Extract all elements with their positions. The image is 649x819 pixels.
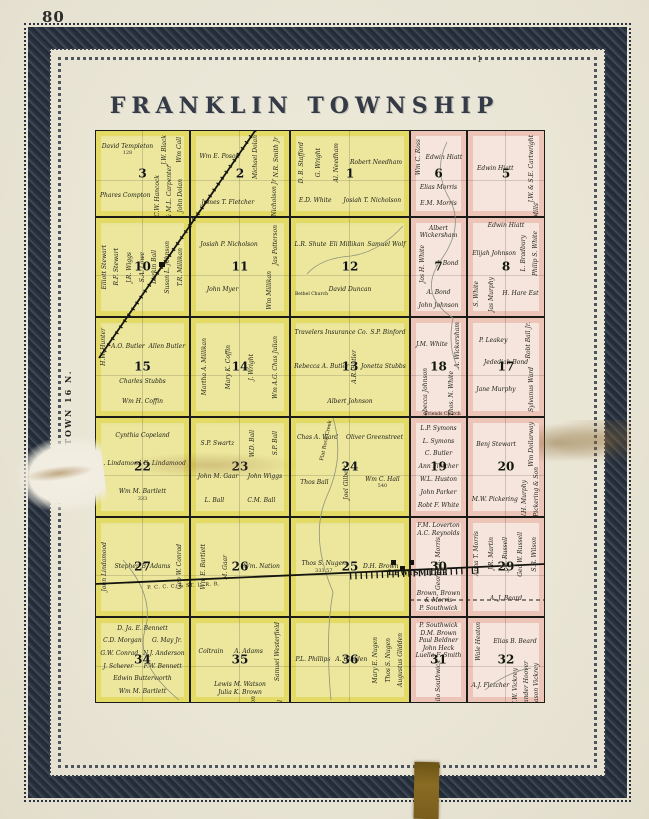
section-number: 3 [138, 166, 146, 180]
section-number: 2 [236, 166, 244, 180]
owner-label: J. Wright [248, 354, 256, 381]
map-label-friends-church: Friends Church [425, 412, 461, 417]
section-number: 15 [134, 359, 151, 373]
owner-label: David Duncan [329, 286, 372, 294]
section-number: 18 [430, 359, 447, 373]
map-section-11: 11Josiah P. NicholsonJas PattersonJohn M… [190, 217, 290, 317]
owner-label: Paul Beldner [419, 637, 458, 645]
owner-label: D.M. Brown [420, 630, 456, 638]
map-section-36: 36P.L. PhillipsA. GliddenMary E. NugenTh… [290, 617, 410, 703]
owner-label: Jas Murphy [488, 277, 496, 312]
owner-label: A.J. Fletcher [471, 682, 509, 690]
bookmark-ribbon [414, 762, 440, 819]
owner-label: Mary E. Russell [277, 700, 285, 703]
acreage-value: 128 [102, 150, 153, 156]
owner-label: C.W. Hancock [154, 175, 162, 217]
acreage-value: 333 [119, 496, 166, 502]
owner-label: W.L. Huston [420, 476, 457, 484]
owner-label: Wm A.G. Chas Julian [272, 336, 280, 399]
owner-label: Al. Needham [333, 143, 341, 182]
map-section-26: 26Wm E. BartlettM. GaarWm. Nation [190, 517, 290, 617]
owner-label: J.W. & S.E. Cartwright [528, 135, 536, 203]
owner-label: Anna T. Morris [473, 531, 481, 576]
owner-label: David Templeton128 [102, 143, 153, 157]
owner-label: John Parker [421, 489, 457, 497]
page-number: 80 [42, 8, 65, 26]
tear-artifact-left [14, 433, 108, 517]
owner-label: P. Southwick [419, 605, 458, 613]
map-section-12: 12L.R. ShuteEli MillikanSamuel WolfDavid… [290, 217, 410, 317]
map-section-25: 25Thos S. Nugen333.57D.H. Brown [290, 517, 410, 617]
owner-label: A.O. Butler [111, 343, 145, 351]
map-section-18: 18J.M. WhiteA. WickershamRebecca Johnson… [410, 317, 467, 417]
owner-label: Sylvanus Ward [528, 367, 536, 412]
owner-label: Samuel Wolf [367, 241, 405, 249]
owner-label: M.W. Pickering [472, 496, 518, 504]
map-section-27: 27John LindamoodStephen B. AdamsGeo W. C… [95, 517, 190, 617]
section-number: 13 [342, 359, 359, 373]
owner-label: Jane Murphy [476, 386, 515, 394]
map-section-15: 15H.W. HunterA.O. ButlerAllen ButlerChar… [95, 317, 190, 417]
map-section-29: 29Anna T. MorrisJ.R. MartinJ.N. RussellG… [467, 517, 545, 617]
map-section-14: 14Martha A. MillikanMary K. CoffinJ. Wri… [190, 317, 290, 417]
section-number: 17 [498, 359, 515, 373]
stain-artifact-right [539, 420, 631, 466]
township-map: 3David Templeton128J.W. BlackWm CallPhar… [95, 130, 545, 703]
owner-label: John Heck [423, 645, 454, 653]
owner-label: L. Bradbury [520, 235, 528, 271]
owner-label: L.P. Symons [420, 425, 456, 433]
owner-label: Cynthia Copeland [115, 432, 169, 440]
owner-label: Wm. Nation [244, 563, 280, 571]
owner-label: Brown, Brown & Morris [414, 590, 462, 605]
owner-label: Ed. J.D. Mills [533, 203, 541, 217]
owner-label: D. B. Stafford [298, 142, 306, 183]
owner-label: S.P. Binford [370, 329, 405, 337]
owner-label: Wm M. Bartlett333 [119, 488, 166, 502]
owner-label: J. Scherer [103, 663, 133, 671]
owner-label: Wm C. Hall540 [365, 476, 400, 490]
owner-label: E.D. White [299, 197, 332, 205]
map-section-30: 30F.M. LovertonA.C. ReynoldsGeorge R. Mo… [410, 517, 467, 617]
owner-label: Elijah Johnson [472, 250, 516, 258]
owner-label: G. Wright [315, 148, 323, 177]
owner-label: Edwin Butterworth [113, 675, 171, 683]
owner-label: Susan L. Johnson [164, 241, 172, 294]
owner-label: L.R. Shute [294, 241, 326, 249]
owner-label: Benj Stewart [476, 441, 516, 449]
section-number: 8 [502, 259, 510, 273]
owner-label: S.R. Wilson [531, 537, 539, 572]
map-section-20: 20Benj StewartWm DollarwayM.W. Pickering… [467, 417, 545, 517]
stain-artifact-map [120, 452, 300, 478]
owner-label: Augustus Glidden [397, 633, 405, 687]
owner-label: L. Ball [205, 497, 225, 505]
owner-label: Chas A. Ward [297, 434, 338, 442]
owner-label: J.W. Vickrey [512, 668, 520, 703]
section-number: 7 [434, 259, 442, 273]
owner-label: James T. Fletcher [201, 199, 254, 207]
map-section-5: 5Edwin HiattJ.W. & S.E. CartwrightEst. C… [467, 130, 545, 217]
owner-label: M.W. Pickering & Son [533, 467, 541, 517]
owner-label: John Lindamood [101, 542, 109, 592]
owner-label: Thos S. Nugen333.57 [302, 560, 347, 574]
owner-label: R.F. Stewart [113, 248, 121, 286]
owner-label: Elias Morris [420, 184, 457, 192]
map-section-7: 7Albert WickershamJos H. WhiteJ. BondA. … [410, 217, 467, 317]
owner-label: G. May Jr. [152, 637, 182, 645]
owner-label: C. Butler [425, 450, 452, 458]
acreage-value: 333.57 [302, 568, 347, 574]
owner-label: Wm Call [176, 137, 184, 163]
section-number: 34 [134, 652, 151, 666]
owner-label: John Myer [207, 286, 239, 294]
map-section-8: 8Edwin HiattElijah JohnsonL. BradburyPhi… [467, 217, 545, 317]
owner-label: Jas Patterson [272, 225, 280, 265]
owner-label: Elias B. Beard [493, 638, 536, 646]
owner-label: Jonetta Stubbs [361, 363, 406, 371]
owner-label: L. Symons [423, 438, 455, 446]
owner-label: E.M. Morris [420, 200, 457, 208]
owner-label: Josiah T. Nicholson [343, 197, 401, 205]
section-number: 14 [232, 359, 249, 373]
map-section-19: 19L.P. SymonsL. SymonsC. ButlerAnn Fletc… [410, 417, 467, 517]
owner-label: Robt F. White [418, 502, 459, 510]
owner-label: Samuel Westerfield [274, 622, 282, 681]
section-number: 11 [232, 259, 249, 273]
owner-label: S.P. Swartz [201, 440, 235, 448]
map-label-bethel-church: Bethel Church [295, 292, 328, 297]
owner-label: Sarah E.E. Watson [250, 696, 258, 703]
owner-label: W.H. Murphy [521, 480, 529, 517]
owner-label: Mary E. Nugen [372, 637, 380, 683]
owner-label: John Johnson [419, 302, 459, 310]
owner-label: Thos S. Nugen [385, 638, 393, 683]
owner-label: A. Bond [427, 289, 451, 297]
owner-label: G.W. Conrad [100, 650, 138, 658]
map-section-1: 1D. B. StaffordG. WrightAl. NeedhamRober… [290, 130, 410, 217]
owner-label: Edwin Hiatt [488, 222, 525, 230]
owner-label: Leander Hoover [523, 661, 531, 703]
owner-label: John Dolan [177, 179, 185, 212]
owner-label: P. Leakey [479, 337, 507, 345]
map-section-17: 17P. LeakeyRobt Ball Jr.Jedediah BondJan… [467, 317, 545, 417]
section-number: 29 [498, 559, 515, 573]
section-number: 5 [502, 166, 510, 180]
owner-label: Albert Johnson [327, 398, 372, 406]
map-section-32: 32Wale HeatonElias B. BeardA.J. Fletcher… [467, 617, 545, 703]
owner-label: Philip S. White [532, 231, 540, 276]
owner-label: Edwin Hiatt [426, 154, 463, 162]
owner-label: Josiah P. Nicholson [200, 241, 257, 249]
owner-label: Robt Ball Jr. [525, 322, 533, 359]
owner-label: Thos Ball [300, 479, 328, 487]
section-number: 12 [342, 259, 359, 273]
owner-label: Mason Vickrey [533, 663, 541, 703]
owner-label: S. White [473, 281, 481, 307]
owner-label: Jos H. White [419, 245, 427, 283]
section-number: 31 [430, 652, 447, 666]
map-section-10: 10Elliott StewartR.F. StewartJ.R. WiggsS… [95, 217, 190, 317]
owner-label: Travelers Insurance Co. [294, 329, 367, 337]
owner-label: Geo W. Russell [517, 532, 525, 577]
owner-label: P.L. Phillips [295, 656, 330, 664]
map-section-24: 24Chas A. WardOliver GreenstreetThos Bal… [290, 417, 410, 517]
owner-label: Eli Millikan [329, 241, 364, 249]
section-number: 19 [430, 459, 447, 473]
owner-label: J.W. Black [161, 135, 169, 165]
owner-label: Lurkin Ball [151, 250, 159, 284]
owner-label: Rebecca Johnson [422, 368, 430, 417]
owner-label: Allen Butler [149, 343, 186, 351]
owner-label: Robert Needham [350, 159, 402, 167]
owner-label: C.D. Morgan [103, 637, 142, 645]
owner-label: C.M. Ball [247, 497, 275, 505]
acreage-value: 540 [365, 483, 400, 489]
owner-label: Wale Heaton [475, 622, 483, 661]
owner-label: Thos. N. White [448, 371, 456, 416]
section-number: 35 [232, 652, 249, 666]
owner-label: H.W. Hunter [100, 328, 108, 366]
owner-label: J.R. Wiggs [126, 252, 134, 283]
map-section-2: 2Wm E. PosonMichael DolanN.R. Smith JrJa… [190, 130, 290, 217]
section-number: 25 [342, 559, 359, 573]
owner-label: Albert Wickersham [414, 225, 462, 240]
owner-label: F.M. Loverton [417, 522, 459, 530]
section-number: 36 [342, 652, 359, 666]
owner-label: N.R. Smith Jr [273, 137, 281, 177]
atlas-page: 80 1 FRANKLIN TOWNSHIP TOWN 16 N. [0, 0, 649, 819]
map-title: FRANKLIN TOWNSHIP [0, 93, 609, 119]
owner-label: J.P. Nicholson Jr [271, 179, 279, 217]
map-section-13: 13Travelers Insurance Co.S.P. BinfordReb… [290, 317, 410, 417]
section-number: 10 [134, 259, 151, 273]
owner-label: Wm Millikan [266, 271, 274, 310]
section-number: 6 [434, 166, 442, 180]
map-section-3: 3David Templeton128J.W. BlackWm CallPhar… [95, 130, 190, 217]
map-label-lewisville: LEWISVILLE [388, 568, 448, 577]
owner-label: Oliver Greenstreet [346, 434, 403, 442]
owner-label: Elliott Stewart [101, 245, 109, 290]
owner-label: Wm H. Coffin [122, 398, 163, 406]
owner-label: T.R. Millikan [177, 248, 185, 286]
owner-label: Michael Dolan [252, 135, 260, 179]
owner-label: M. Gaar [222, 555, 230, 580]
owner-label: J.R. Martin [488, 537, 496, 570]
owner-label: P. Southwick [419, 622, 458, 630]
owner-label: Coltrain [199, 648, 224, 656]
section-number: 20 [498, 459, 515, 473]
section-number: 27 [134, 559, 151, 573]
owner-label: A. Wickersham [454, 322, 462, 368]
section-number: 24 [342, 459, 359, 473]
owner-label: Martha A. Millikan [201, 338, 209, 395]
owner-label: Wm C. Ross [415, 139, 423, 175]
owner-label: Wm Dollarway [528, 422, 536, 467]
owner-label: D. Ja. E. Bennett [117, 625, 167, 633]
owner-label: A. J. Beard [490, 595, 522, 603]
owner-label: A.C. Reynolds [417, 530, 459, 538]
owner-label: Charles Stubbs [119, 378, 166, 386]
owner-label: Phares Compton [100, 192, 151, 200]
owner-label: Wm E. Poson [200, 153, 240, 161]
section-number: 1 [346, 166, 354, 180]
owner-label: J.M. White [416, 341, 448, 349]
plate-mark: 1 [477, 55, 482, 64]
owner-label: B. & M.L. Carpenter [166, 165, 174, 217]
map-section-34: 34D. Ja. E. BennettC.D. MorganG. May Jr.… [95, 617, 190, 703]
section-number: 26 [232, 559, 249, 573]
map-section-31: 31P. SouthwickD.M. BrownPaul BeldnerJohn… [410, 617, 467, 703]
owner-label: H. Hare Est [502, 290, 538, 298]
map-section-6: 6Wm C. RossEdwin HiattElias MorrisE.M. M… [410, 130, 467, 217]
owner-label: Wm M. Bartlett [119, 688, 166, 696]
town-range-label: TOWN 16 N. [63, 369, 73, 445]
owner-label: Lewis M. Watson [214, 681, 266, 689]
map-section-35: 35ColtrainA. AdamsSamuel WesterfieldLewi… [190, 617, 290, 703]
section-number: 32 [498, 652, 515, 666]
